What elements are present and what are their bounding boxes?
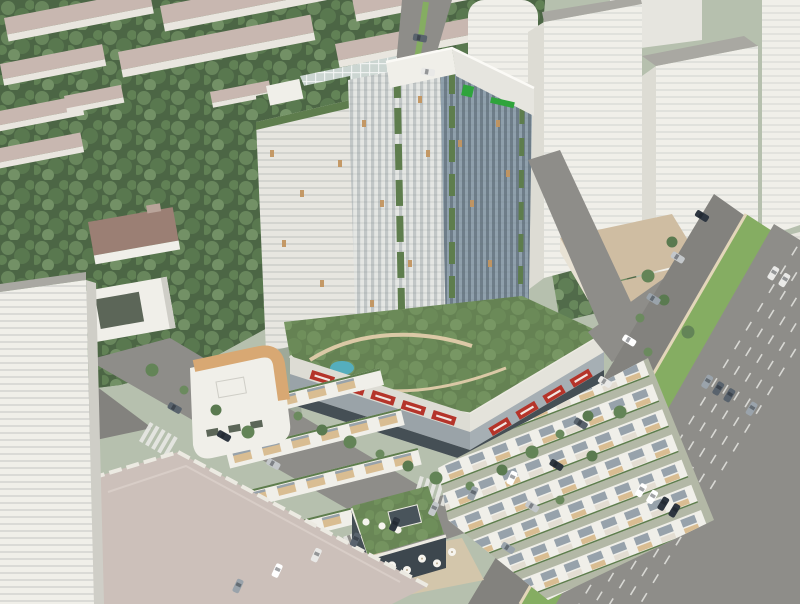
- rendering-stage: [0, 0, 800, 604]
- street-tree: [344, 436, 357, 449]
- vertical-garden-strip: [397, 72, 402, 334]
- street-tree: [317, 425, 328, 436]
- street-tree: [682, 326, 695, 339]
- street-tree: [146, 364, 159, 377]
- street-tree: [583, 411, 594, 422]
- street-tree: [497, 465, 508, 476]
- street-tree: [430, 472, 443, 485]
- street-tree: [642, 270, 655, 283]
- street-tree: [403, 461, 414, 472]
- umbrella: [433, 559, 441, 567]
- street-tree: [294, 412, 303, 421]
- street-tree: [180, 386, 189, 395]
- street-tree: [556, 430, 565, 439]
- street-tree: [211, 405, 222, 416]
- street-tree: [376, 450, 385, 459]
- umbrella: [378, 522, 385, 529]
- umbrella: [362, 518, 369, 525]
- umbrella: [448, 548, 456, 556]
- street-tree: [636, 314, 645, 323]
- street-tree: [644, 348, 653, 357]
- aerial-rendering: [0, 0, 800, 604]
- street-tree: [587, 451, 598, 462]
- street-tree: [667, 237, 678, 248]
- street-tree: [614, 406, 627, 419]
- street-tree: [242, 426, 255, 439]
- umbrella: [418, 555, 426, 563]
- rounded-building: [190, 352, 290, 459]
- left-tower: [0, 272, 104, 604]
- street-tree: [526, 446, 539, 459]
- street-tree: [556, 496, 565, 505]
